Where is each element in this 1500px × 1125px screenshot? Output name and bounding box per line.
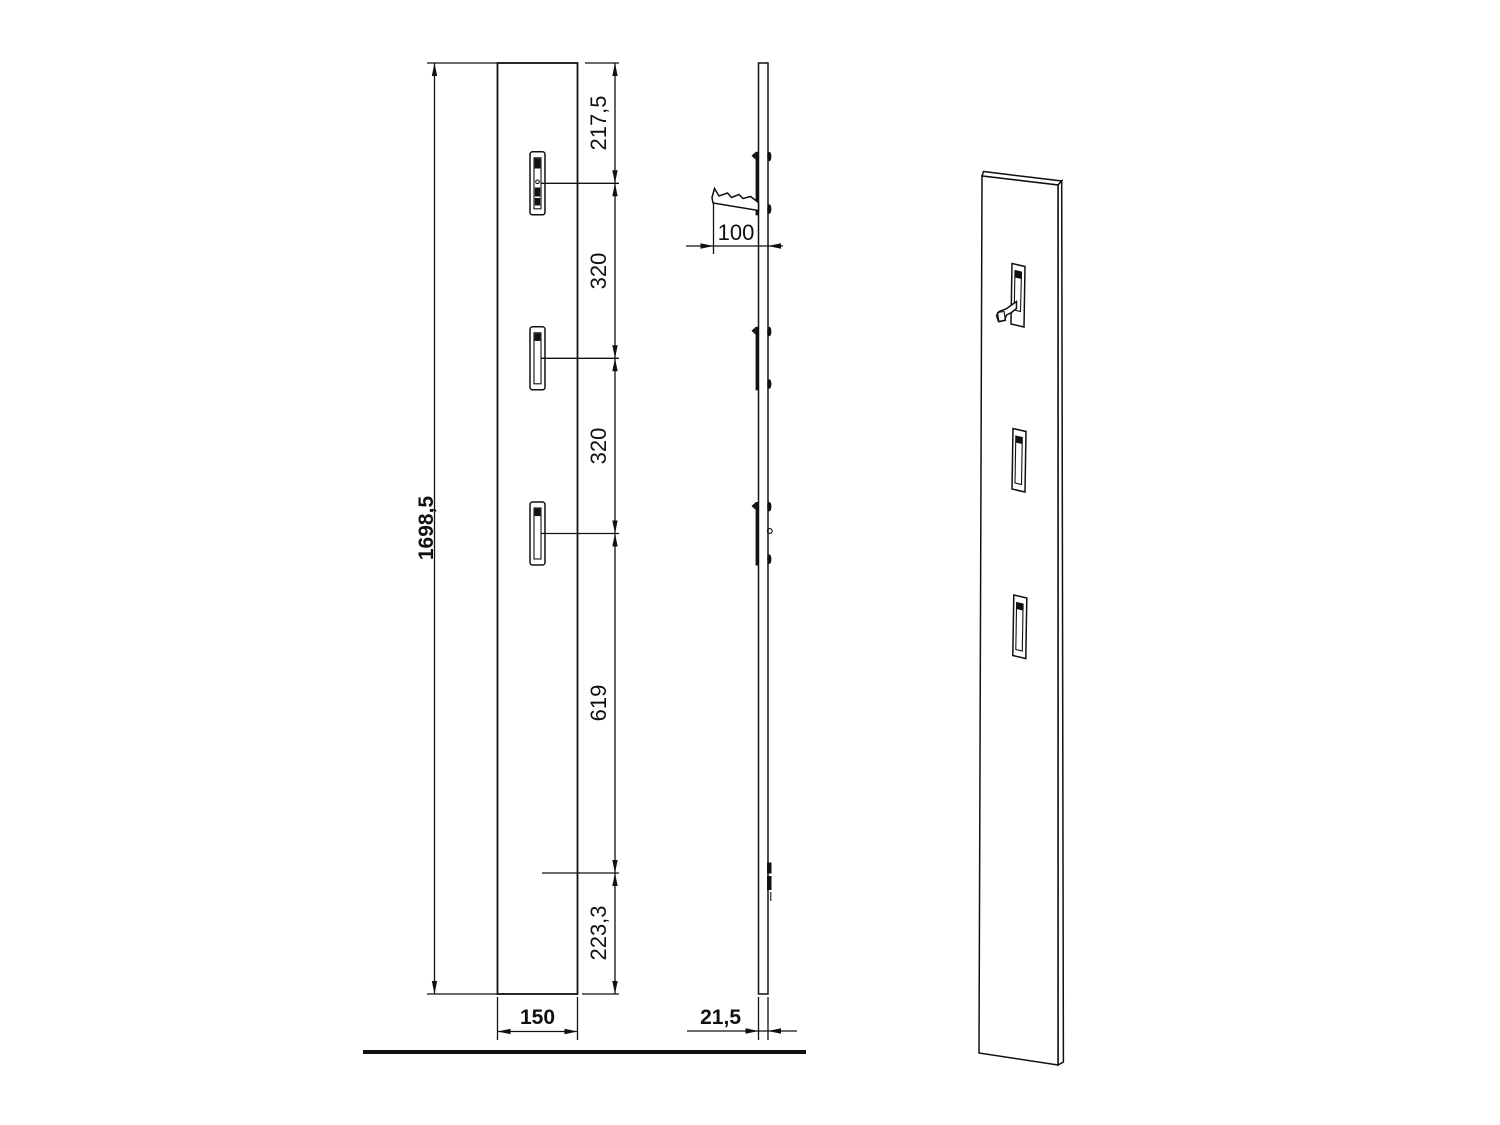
arrow-down [612, 521, 617, 534]
thickness-dimension: 21,5 [687, 997, 797, 1040]
front-view: 1698,5 217,5 320 320 619 223,3 [415, 63, 619, 1040]
screw-bump [767, 204, 771, 214]
overall-height-label: 1698,5 [415, 496, 438, 561]
hook-mount-bar [756, 327, 759, 391]
perspective-hook-slot-3 [1013, 595, 1027, 659]
hook-latch-mid [535, 188, 540, 197]
spacing-3-4-label: 619 [586, 685, 611, 722]
coat-rack-panel-drawing: 1698,5 217,5 320 320 619 223,3 [0, 0, 1500, 1125]
panel-side-face [1058, 181, 1063, 1065]
arrow-up [612, 358, 617, 371]
screw-bump [767, 327, 771, 337]
spacing-1-2-label: 320 [586, 253, 611, 290]
screw-bump [767, 152, 771, 162]
hook-tab [752, 152, 756, 160]
side-panel-outline [759, 63, 769, 994]
hook-latch-top [535, 159, 541, 169]
hook-latch-top [535, 333, 541, 341]
folded-hook-arm [712, 189, 759, 211]
arrow-up [432, 63, 437, 76]
arrow-down [612, 345, 617, 358]
arrow-down [612, 860, 617, 873]
arrow-left [498, 1029, 511, 1034]
bracket-block [767, 863, 772, 874]
technical-drawing-page: 1698,5 217,5 320 320 619 223,3 [0, 0, 1500, 1125]
arrow-down [432, 981, 437, 994]
arrow-up [612, 63, 617, 76]
overall-height-dimension: 1698,5 [415, 63, 498, 994]
perspective-hook-slot-2 [1012, 429, 1026, 493]
perspective-view [979, 172, 1063, 1066]
hook-tab [752, 502, 756, 510]
spacing-top-label: 217,5 [586, 95, 611, 150]
hook-mount-bar [756, 502, 759, 566]
width-dimension: 150 [498, 997, 578, 1040]
hook-projection-label: 100 [718, 220, 755, 245]
extension-lines [759, 997, 769, 1040]
spacing-2-3-label: 320 [586, 428, 611, 465]
screw-bump [767, 379, 771, 389]
hook-latch-bottom [535, 198, 540, 206]
hook-tab [752, 327, 756, 335]
panel-width-label: 150 [520, 1006, 555, 1029]
panel-thickness-label: 21,5 [700, 1006, 741, 1029]
arrow-right [746, 1028, 759, 1033]
screw-bump [767, 554, 771, 564]
screw-bump [767, 502, 771, 512]
arrow-up [612, 183, 617, 196]
hook-latch-top [535, 509, 541, 516]
arrow-left [768, 243, 781, 248]
arrow-down [612, 170, 617, 183]
hook-latch-top [1015, 271, 1022, 280]
arrow-down [612, 981, 617, 994]
bracket-block [767, 876, 772, 890]
spacing-bottom-label: 223,3 [586, 905, 611, 960]
side-view: 100 21,5 [686, 63, 797, 1040]
arrow-right [701, 243, 714, 248]
arrow-up [612, 873, 617, 886]
arrow-left [768, 1028, 781, 1033]
arrow-right [565, 1029, 578, 1034]
arrow-up [612, 534, 617, 547]
